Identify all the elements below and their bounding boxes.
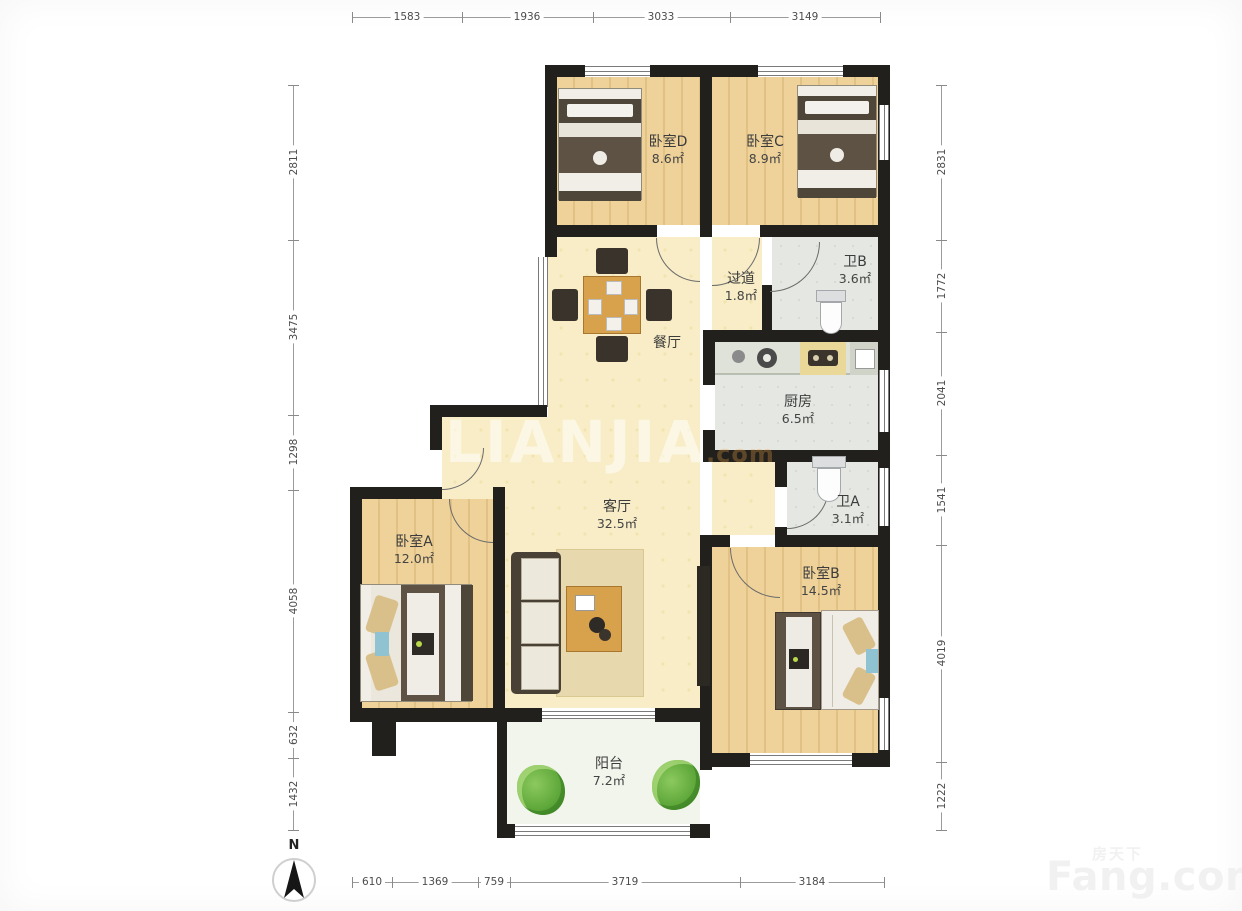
- room-label-living: 客厅 32.5㎡: [597, 498, 637, 532]
- room-area: 8.6㎡: [649, 151, 688, 167]
- dim-label-right-2: 2041: [936, 377, 948, 410]
- dim-label-bottom-3: 3719: [609, 876, 642, 888]
- wall: [497, 722, 507, 838]
- dim-tick: [936, 762, 947, 763]
- dim-tick: [730, 12, 731, 23]
- watermark-center: LIANJIA.com: [445, 408, 775, 476]
- bed-part: [559, 191, 641, 201]
- plate: [606, 281, 622, 295]
- bed-part: [445, 585, 461, 701]
- wall: [497, 824, 515, 838]
- room-area: 3.1㎡: [832, 511, 864, 527]
- toilet-icon-bathroom-b: [816, 290, 846, 302]
- dim-tick: [936, 545, 947, 546]
- room-area: 7.2㎡: [593, 773, 625, 789]
- wall: [775, 462, 787, 487]
- floorplan-canvas: 卧室D 8.6㎡ 卧室C 8.9㎡ 过道 1.8㎡ 卫B 3.6㎡ 餐厅 厨房 …: [0, 0, 1242, 911]
- chair-icon: [646, 289, 672, 321]
- dim-label-left-0: 2811: [288, 146, 300, 179]
- dim-tick: [478, 877, 479, 888]
- bed-runner: [375, 632, 389, 656]
- wall: [762, 285, 772, 335]
- toilet-icon-bathroom-a: [812, 456, 846, 468]
- bed-emblem: [830, 148, 844, 162]
- bed-icon-bedroom-a: [360, 584, 472, 702]
- dim-label-bottom-2: 759: [481, 876, 507, 888]
- dim-label-top-0: 1583: [391, 11, 424, 23]
- watermark-brand-en: Fang.com: [1046, 854, 1242, 900]
- wall: [703, 330, 715, 385]
- dim-label-bottom-0: 610: [359, 876, 385, 888]
- pot-icon: [732, 350, 745, 363]
- bed-runner: [866, 649, 878, 673]
- room-name: 厨房: [782, 393, 814, 411]
- dim-tick: [510, 877, 511, 888]
- room-name: 卫A: [832, 493, 864, 511]
- wall: [760, 225, 878, 237]
- dim-tick: [936, 240, 947, 241]
- plate: [624, 299, 638, 315]
- toilet-bowl-bathroom-b: [820, 302, 842, 334]
- dim-label-left-3: 4058: [288, 585, 300, 618]
- bed-accent-dot: [416, 641, 422, 647]
- room-area: 8.9㎡: [746, 151, 784, 167]
- dim-label-left-5: 1432: [288, 778, 300, 811]
- dim-label-left-2: 1298: [288, 436, 300, 469]
- decor: [599, 629, 611, 641]
- plant-icon: [517, 765, 565, 815]
- wall: [852, 753, 890, 767]
- tv-icon: [789, 649, 809, 669]
- bed-pillow: [567, 104, 633, 117]
- appliance-icon: [850, 342, 878, 375]
- room-area: 1.8㎡: [725, 288, 757, 304]
- wall: [545, 65, 557, 237]
- dim-tick: [288, 490, 299, 491]
- bed-part: [559, 123, 641, 137]
- room-label-bedroom-c: 卧室C 8.9㎡: [746, 133, 784, 167]
- bed-part: [361, 585, 371, 701]
- bed-part: [461, 585, 473, 701]
- sink-center: [763, 354, 771, 362]
- balcony-door-threshold: [542, 711, 655, 719]
- bed-icon-bedroom-c: [797, 85, 877, 197]
- dim-label-right-4: 4019: [936, 637, 948, 670]
- compass-icon: [269, 853, 319, 905]
- bed-part: [559, 89, 641, 99]
- burner-dot: [827, 355, 833, 361]
- bed-icon-bedroom-d: [558, 88, 642, 200]
- dim-tick: [352, 12, 353, 23]
- sofa-cushion: [521, 602, 559, 644]
- bed-part: [798, 86, 876, 96]
- dim-label-right-5: 1222: [936, 780, 948, 813]
- dim-tick: [288, 758, 299, 759]
- window: [879, 105, 889, 160]
- bed-part: [798, 170, 876, 188]
- window: [750, 755, 852, 765]
- bed-emblem: [593, 151, 607, 165]
- sofa-cushion: [521, 646, 559, 690]
- room-label-bedroom-a: 卧室A 12.0㎡: [394, 533, 434, 567]
- room-label-bedroom-b: 卧室B 14.5㎡: [801, 565, 841, 599]
- wardrobe-icon-bedroom-b: [775, 612, 821, 710]
- decor: [575, 595, 595, 611]
- wall: [497, 708, 542, 722]
- window: [758, 66, 843, 76]
- chair-icon: [596, 336, 628, 362]
- dim-label-right-1: 1772: [936, 270, 948, 303]
- compass-north-label: N: [268, 838, 320, 853]
- dim-tick: [462, 12, 463, 23]
- room-label-balcony: 阳台 7.2㎡: [593, 755, 625, 789]
- sofa-cushion: [521, 558, 559, 600]
- dining-table-icon: [583, 276, 641, 334]
- wall: [700, 65, 712, 237]
- stove-icon: [800, 342, 846, 375]
- room-area: 12.0㎡: [394, 551, 434, 567]
- bed-pillow: [805, 101, 869, 114]
- coffee-table-icon: [566, 586, 622, 652]
- room-label-dining: 餐厅: [653, 334, 681, 352]
- room-name: 卫B: [839, 253, 871, 271]
- window: [538, 257, 548, 407]
- room-name: 卧室C: [746, 133, 784, 151]
- chair-icon: [596, 248, 628, 274]
- dim-label-bottom-4: 3184: [796, 876, 829, 888]
- appliance-door: [855, 349, 875, 369]
- dimension-line-right: [941, 85, 942, 830]
- room-name: 客厅: [597, 498, 637, 516]
- room-name: 过道: [725, 270, 757, 288]
- dim-label-bottom-1: 1369: [419, 876, 452, 888]
- dim-label-top-2: 3033: [645, 11, 678, 23]
- chair-icon: [552, 289, 578, 321]
- dim-tick: [352, 877, 353, 888]
- wall: [780, 535, 890, 547]
- room-area: 32.5㎡: [597, 516, 637, 532]
- window: [879, 370, 889, 432]
- room-name: 阳台: [593, 755, 625, 773]
- room-name: 卧室B: [801, 565, 841, 583]
- bed-part: [798, 120, 876, 134]
- room-name: 餐厅: [653, 334, 681, 352]
- dim-label-left-1: 3475: [288, 311, 300, 344]
- wall: [350, 487, 442, 499]
- wall: [493, 487, 505, 720]
- balcony-window: [515, 826, 690, 836]
- dim-tick: [936, 332, 947, 333]
- room-area: 14.5㎡: [801, 583, 841, 599]
- wall: [545, 237, 557, 257]
- dim-tick: [288, 240, 299, 241]
- dim-tick: [936, 455, 947, 456]
- wall: [690, 824, 710, 838]
- room-label-bedroom-d: 卧室D 8.6㎡: [649, 133, 688, 167]
- window: [879, 468, 889, 526]
- wall: [655, 708, 712, 722]
- dim-label-right-0: 2831: [936, 146, 948, 179]
- wall: [350, 708, 505, 722]
- bed-icon-bedroom-b: [821, 610, 879, 710]
- bed-part: [798, 188, 876, 198]
- dim-tick: [392, 877, 393, 888]
- dim-label-top-1: 1936: [511, 11, 544, 23]
- wall: [712, 753, 750, 767]
- room-label-kitchen: 厨房 6.5㎡: [782, 393, 814, 427]
- kitchen-counter-icon: [715, 342, 878, 375]
- dim-tick: [288, 712, 299, 713]
- dim-tick: [936, 830, 947, 831]
- dim-tick: [288, 415, 299, 416]
- bed-part: [559, 173, 641, 191]
- room-area: 6.5㎡: [782, 411, 814, 427]
- window: [585, 66, 650, 76]
- wall: [712, 330, 890, 342]
- dim-tick: [288, 85, 299, 86]
- compass: N: [268, 838, 320, 908]
- wall: [430, 405, 442, 450]
- dim-tick: [288, 830, 299, 831]
- dim-tick: [936, 85, 947, 86]
- window: [879, 698, 889, 750]
- room-label-bathroom-a: 卫A 3.1㎡: [832, 493, 864, 527]
- tv-dot: [793, 657, 798, 662]
- dim-label-right-3: 1541: [936, 484, 948, 517]
- dim-tick: [884, 877, 885, 888]
- wall: [545, 225, 657, 237]
- plate: [588, 299, 602, 315]
- bed-sheet-line: [832, 615, 833, 707]
- room-area: 3.6㎡: [839, 271, 871, 287]
- sofa-icon: [511, 552, 561, 694]
- watermark-center-main: LIANJIA: [445, 408, 706, 476]
- room-label-hallway: 过道 1.8㎡: [725, 270, 757, 304]
- wall: [372, 722, 396, 756]
- room-label-bathroom-b: 卫B 3.6㎡: [839, 253, 871, 287]
- dim-label-top-3: 3149: [789, 11, 822, 23]
- watermark-center-suffix: .com: [706, 440, 775, 468]
- dim-tick: [740, 877, 741, 888]
- dim-tick: [880, 12, 881, 23]
- burner-dot: [813, 355, 819, 361]
- plate: [606, 317, 622, 331]
- dim-tick: [593, 12, 594, 23]
- room-name: 卧室D: [649, 133, 688, 151]
- room-name: 卧室A: [394, 533, 434, 551]
- tv-cabinet-icon: [697, 566, 710, 686]
- dim-label-left-4: 632: [288, 722, 300, 748]
